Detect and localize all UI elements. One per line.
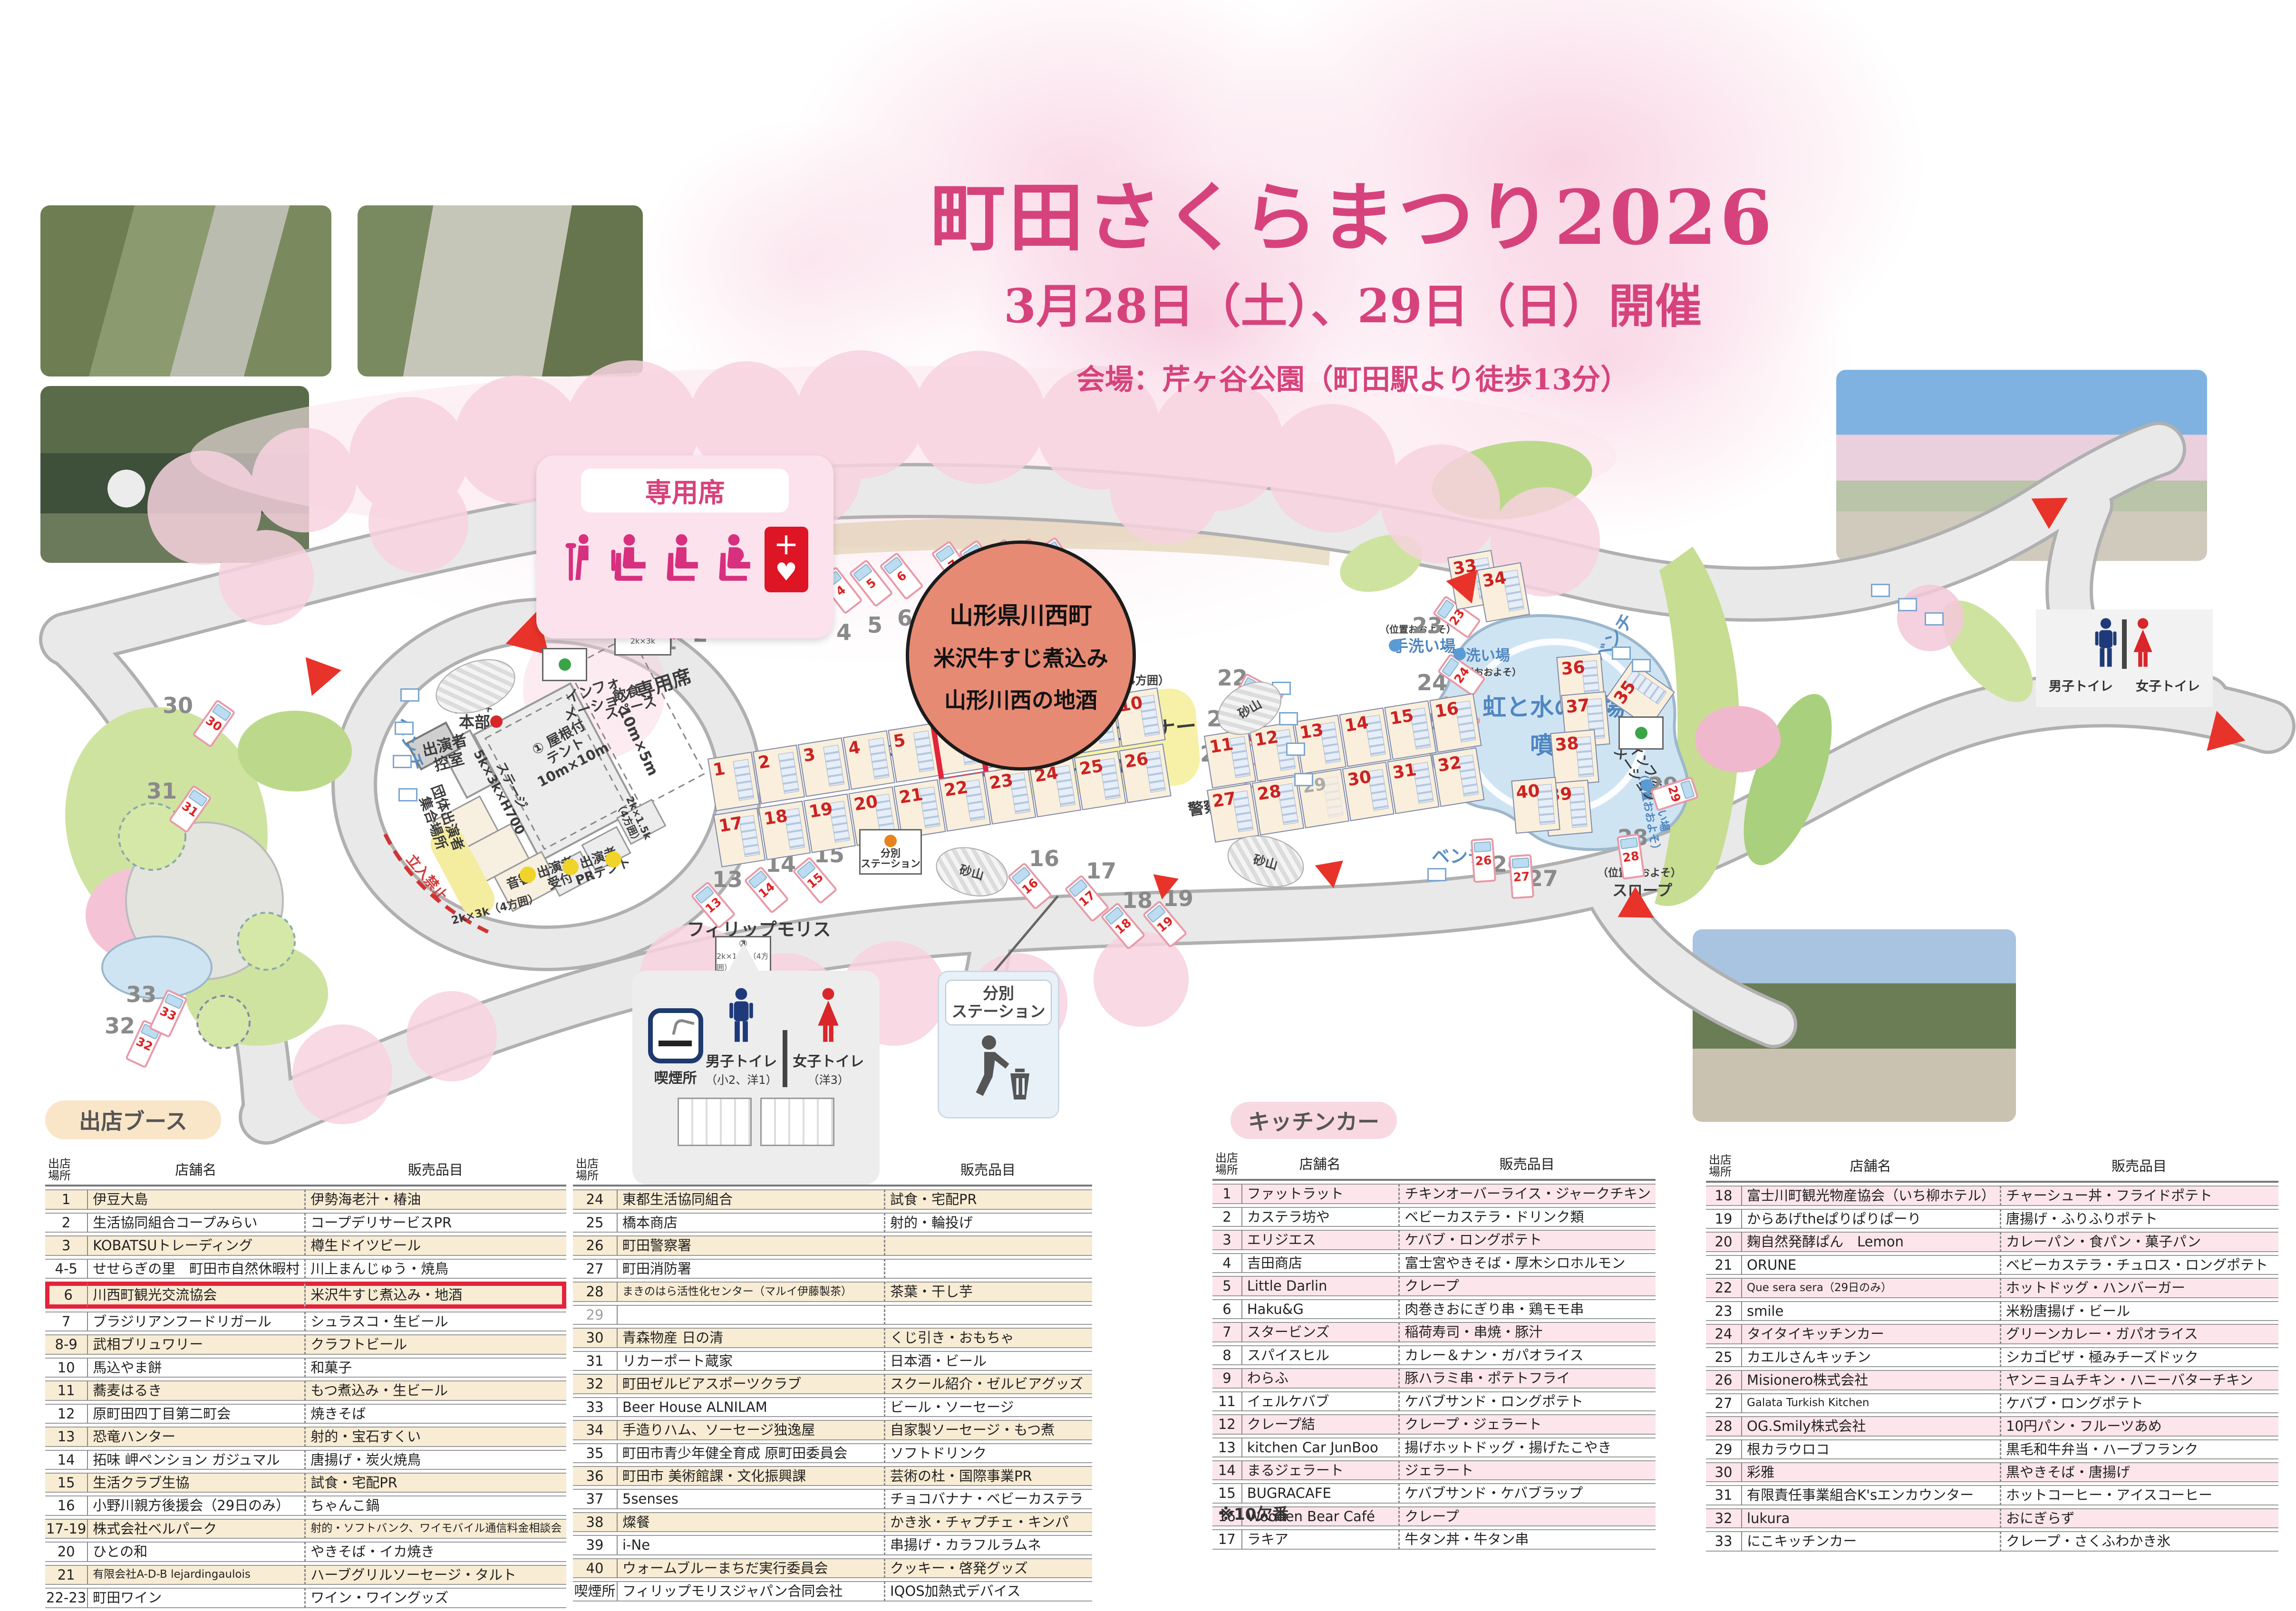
cell-items: 10円パン・フルーツあめ	[2000, 1416, 2278, 1436]
cell-name: 有限会社A-D-B lejardingaulois	[87, 1565, 304, 1585]
cell-name: ウォームブルーまちだ実行委員会	[617, 1558, 884, 1578]
cell-no: 13	[45, 1427, 87, 1447]
male-toilet-label: 男子トイレ	[2049, 676, 2113, 695]
cell-items: 射的・輪投げ	[884, 1213, 1092, 1233]
cell-name: 有限責任事業組合K'sエンカウンター	[1741, 1485, 2000, 1505]
cell-name: にこキッチンカー	[1741, 1531, 2000, 1551]
column-header-place: 出店 場所	[1212, 1149, 1241, 1181]
kitchen-table-1: 出店 場所店舗名販売品目1ファットラットチキンオーバーライス・ジャークチキン2カ…	[1212, 1147, 1656, 1553]
table-row: 375sensesチョコバナナ・ベビーカステラ	[573, 1489, 1092, 1509]
cell-no: 27	[1706, 1393, 1741, 1413]
cell-name: フィリップモリスジャパン合同会社	[617, 1581, 884, 1601]
right-toilet-legend: 男子トイレ 女子トイレ	[2036, 609, 2213, 707]
cell-no: 14	[45, 1450, 87, 1470]
cell-name: まるジェラート	[1241, 1460, 1399, 1480]
table-row: 3エリジエスケバブ・ロングポテト	[1212, 1230, 1656, 1250]
cell-items: 肉巻きおにぎり串・鶏モモ串	[1398, 1299, 1656, 1319]
cell-items: スクール紹介・ゼルビアグッズ	[884, 1374, 1092, 1394]
venue-line: 会場：芹ヶ谷公園（町田駅より徒歩13分）	[770, 357, 1935, 398]
table-row: 31リカーポート蔵家日本酒・ビール	[573, 1351, 1092, 1371]
column-header-name: 店舗名	[87, 1155, 304, 1187]
cell-no: 22-23	[45, 1588, 87, 1608]
cell-name: Little Darlin	[1241, 1276, 1399, 1296]
table-row: 24東都生活協同組合試食・宅配PR	[573, 1189, 1092, 1209]
cell-name: まきのはら活性化センター（マルイ伊藤製茶）	[617, 1282, 884, 1302]
cell-name: クレープ結	[1241, 1414, 1399, 1434]
cell-items: ハーブグリルソーセージ・タルト	[304, 1565, 566, 1585]
cell-no: 31	[1706, 1485, 1741, 1505]
cell-no: 29	[573, 1305, 617, 1325]
table-row: 31有限責任事業組合K'sエンカウンターホットコーヒー・アイスコーヒー	[1706, 1485, 2278, 1505]
help-mark-icon: ＋♥	[765, 527, 808, 592]
cell-items: 日本酒・ビール	[884, 1351, 1092, 1371]
table-row: 10馬込やま餅和菓子	[45, 1358, 566, 1378]
table-row: 38燦餐かき氷・チャプチェ・キンパ	[573, 1512, 1092, 1532]
cell-no: 4-5	[45, 1259, 87, 1279]
cell-no: 3	[1212, 1230, 1241, 1250]
table-row: 5Little Darlinクレープ	[1212, 1276, 1656, 1296]
cell-items: シカゴピザ・極みチーズドック	[2000, 1347, 2278, 1367]
cell-no: 4	[1212, 1253, 1241, 1273]
table-row: 11蕎麦はるきもつ煮込み・生ビール	[45, 1380, 566, 1400]
cell-name: Galata Turkish Kitchen	[1741, 1393, 2000, 1413]
cell-name: ブラジリアンフードリガール	[87, 1312, 304, 1331]
table-row: 13kitchen Car JunBoo揚げホットドッグ・揚げたこやき	[1212, 1437, 1656, 1457]
cell-name: 燦餐	[617, 1512, 884, 1532]
cell-items: ケバブ・ロングポテト	[2000, 1393, 2278, 1413]
table-row: 32町田ゼルビアスポーツクラブスクール紹介・ゼルビアグッズ	[573, 1374, 1092, 1394]
cell-name: ひとの和	[87, 1542, 304, 1562]
event-date: 3月28日（土）、29日（日）開催	[770, 269, 1935, 336]
cell-name: KOBATSUトレーディング	[87, 1235, 304, 1255]
male-toilet-label: 男子トイレ	[706, 1053, 777, 1071]
cell-name: 吉田商店	[1241, 1253, 1399, 1273]
cell-no: 20	[45, 1542, 87, 1562]
cell-no: 14	[1212, 1460, 1241, 1480]
table-row: 8-9武相ブリュワリークラフトビール	[45, 1334, 566, 1354]
table-row: 9わらふ豚ハラミ串・ポテトフライ	[1212, 1368, 1656, 1388]
cell-items: ホットコーヒー・アイスコーヒー	[2000, 1485, 2278, 1505]
male-icon	[727, 987, 756, 1047]
cell-name: 生活協同組合コープみらい	[87, 1213, 304, 1233]
cell-items: ケバブ・ロングポテト	[1398, 1230, 1656, 1250]
cell-no: 25	[1706, 1347, 1741, 1367]
cell-name: 蕎麦はるき	[87, 1380, 304, 1400]
cell-name: 5senses	[617, 1489, 884, 1509]
cell-name: タイタイキッチンカー	[1741, 1324, 2000, 1344]
cell-name: からあげtheぱりぱりぱーり	[1741, 1209, 2000, 1229]
crutch-user-icon	[562, 533, 595, 586]
cell-name: 町田市青少年健全育成 原町田委員会	[617, 1443, 884, 1463]
cell-items: 唐揚げ・ふりふりポテト	[2000, 1209, 2278, 1229]
male-toilet-sub: （小2、洋1）	[706, 1071, 777, 1087]
table-row: 7ブラジリアンフードリガールシュラスコ・生ビール	[45, 1312, 566, 1331]
cell-no: 15	[45, 1473, 87, 1493]
cell-items: 豚ハラミ串・ポテトフライ	[1398, 1368, 1656, 1388]
cell-items: チョコバナナ・ベビーカステラ	[884, 1489, 1092, 1509]
cell-no: 3	[45, 1235, 87, 1255]
cell-items: 射的・ソフトバンク、ワイモバイル通信料金相談会	[304, 1519, 566, 1539]
cell-no: 32	[1706, 1508, 1741, 1528]
table-row: 25カエルさんキッチンシカゴピザ・極みチーズドック	[1706, 1347, 2278, 1367]
booth-section-chip: 出店ブース	[45, 1100, 221, 1139]
cell-name: Beer House ALNILAM	[617, 1397, 884, 1417]
annotation-line2: 米沢牛すじ煮込み	[933, 641, 1108, 673]
cell-no: 15	[1212, 1483, 1241, 1503]
smoking-toilet-legend: 喫煙所 男子トイレ （小2、洋1） 女子トイレ （洋3）	[632, 971, 880, 1185]
cell-name: カエルさんキッチン	[1741, 1347, 2000, 1367]
cell-items: IQOS加熱式デバイス	[884, 1581, 1092, 1601]
table-row: 23smile米粉唐揚げ・ビール	[1706, 1301, 2278, 1321]
cell-name: Que sera sera（29日のみ）	[1741, 1278, 2000, 1298]
table-row: 2カステラ坊やベビーカステラ・ドリンク類	[1212, 1207, 1656, 1227]
cell-items: クレープ・ジェラート	[1398, 1414, 1656, 1434]
female-icon	[814, 987, 843, 1047]
cell-items: ちゃんこ鍋	[304, 1495, 566, 1515]
smoking-label: 喫煙所	[654, 1070, 697, 1087]
annotation-line3: 山形川西の地酒	[944, 683, 1097, 714]
cell-name: smile	[1741, 1301, 2000, 1321]
column-header-place: 出店 場所	[1706, 1151, 1741, 1183]
female-toilet-label: 女子トイレ	[2136, 676, 2200, 695]
divider	[2122, 619, 2127, 669]
cell-items: 焼きそば	[304, 1404, 566, 1424]
cell-name: せせらぎの里 町田市自然休暇村	[87, 1259, 304, 1279]
cell-no: 10	[45, 1358, 87, 1378]
cell-items: 黒やきそば・唐揚げ	[2000, 1462, 2278, 1482]
cell-name: 青森物産 日の清	[617, 1328, 884, 1348]
booth-table-2: 出店 場所店舗名販売品目24東都生活協同組合試食・宅配PR25橋本商店射的・輪投…	[573, 1152, 1092, 1604]
table-row: 15生活クラブ生協試食・宅配PR	[45, 1473, 566, 1493]
cell-no: 33	[1706, 1531, 1741, 1551]
column-header-items: 販売品目	[304, 1155, 566, 1187]
kitchen-footnote: ※10欠番	[1218, 1501, 1288, 1524]
kitchen-table-2: 出店 場所店舗名販売品目18富士川町観光物産協会（いち柳ホテル）チャーシュー丼・…	[1706, 1148, 2278, 1554]
sorting-station-label: 分別 ステーション	[945, 980, 1052, 1025]
cell-name: 拓味 岬ペンション ガジュマル	[87, 1450, 304, 1470]
cell-name: エリジエス	[1241, 1230, 1399, 1250]
annotation-line1: 山形県川西町	[949, 597, 1092, 631]
table-row: 34手造りハム、ソーセージ独逸屋自家製ソーセージ・もつ煮	[573, 1420, 1092, 1440]
cell-no: 1	[1212, 1184, 1241, 1204]
cell-items: ジェラート	[1398, 1460, 1656, 1480]
cell-name: 馬込やま餅	[87, 1358, 304, 1378]
cell-no: 7	[45, 1312, 87, 1331]
cell-no: 7	[1212, 1322, 1241, 1342]
trash-person-icon	[963, 1033, 1034, 1104]
cell-no: 24	[573, 1189, 617, 1209]
column-header-name: 店舗名	[1741, 1151, 2000, 1183]
table-row: 20ひとの和やきそば・イカ焼き	[45, 1542, 566, 1562]
table-row: 4吉田商店富士宮やきそば・厚木シロホルモン	[1212, 1253, 1656, 1273]
table-row: 19からあげtheぱりぱりぱーり唐揚げ・ふりふりポテト	[1706, 1209, 2278, 1229]
cell-items: 芸術の杜・国際事業PR	[884, 1466, 1092, 1486]
pregnant-seated-icon	[712, 533, 752, 586]
table-row: 17-19株式会社ベルパーク射的・ソフトバンク、ワイモバイル通信料金相談会	[45, 1519, 566, 1539]
cell-name: カステラ坊や	[1241, 1207, 1399, 1227]
cell-items: 和菓子	[304, 1358, 566, 1378]
cell-items: おにぎらず	[2000, 1508, 2278, 1528]
cell-no: 39	[573, 1535, 617, 1555]
column-header-items: 販売品目	[884, 1155, 1092, 1187]
cell-items: ケバブサンド・ケバブラップ	[1398, 1483, 1656, 1503]
cell-items: ホットドッグ・ハンバーガー	[2000, 1278, 2278, 1298]
cell-items: かき氷・チャプチェ・キンパ	[884, 1512, 1092, 1532]
cell-items: チャーシュー丼・フライドポテト	[2000, 1186, 2278, 1206]
cell-name: イェルケバブ	[1241, 1391, 1399, 1411]
table-row: 12原町田四丁目第二町会焼きそば	[45, 1404, 566, 1424]
booth-table-1: 出店 場所店舗名販売品目1伊豆大島伊勢海老汁・椿油2生活協同組合コープみらいコー…	[45, 1152, 536, 1611]
table-row: 17ラキア牛タン丼・牛タン串	[1212, 1529, 1656, 1549]
cell-no: 30	[573, 1328, 617, 1348]
cell-name	[617, 1305, 884, 1325]
cell-name: 町田ワイン	[87, 1588, 304, 1608]
cell-no: 36	[573, 1466, 617, 1486]
cell-no: 2	[45, 1213, 87, 1233]
cell-no: 31	[573, 1351, 617, 1371]
cell-no: 12	[45, 1404, 87, 1424]
table-row: 33にこキッチンカークレープ・さくふわかき氷	[1706, 1531, 2278, 1551]
cell-no: 28	[1706, 1416, 1741, 1436]
cell-name: 武相ブリュワリー	[87, 1334, 304, 1354]
cell-no: 22	[1706, 1278, 1741, 1298]
cell-name: 町田警察署	[617, 1235, 884, 1255]
cell-items: コープデリサービスPR	[304, 1213, 566, 1233]
table-row: 21ORUNEベビーカステラ・チュロス・ロングポテト	[1706, 1255, 2278, 1275]
cell-no: 34	[573, 1420, 617, 1440]
cell-items: 自家製ソーセージ・もつ煮	[884, 1420, 1092, 1440]
table-row: 27Galata Turkish Kitchenケバブ・ロングポテト	[1706, 1393, 2278, 1413]
table-row: 36町田市 美術館課・文化振興課芸術の杜・国際事業PR	[573, 1466, 1092, 1486]
table-row: 12クレープ結クレープ・ジェラート	[1212, 1414, 1656, 1434]
cell-no: 19	[1706, 1209, 1741, 1229]
cell-no: 23	[1706, 1301, 1741, 1321]
table-row: 28OG.Smily株式会社10円パン・フルーツあめ	[1706, 1416, 2278, 1436]
table-row: 39i-Ne串揚げ・カラフルラムネ	[573, 1535, 1092, 1555]
cell-items: グリーンカレー・ガパオライス	[2000, 1324, 2278, 1344]
cell-no: 30	[1706, 1462, 1741, 1482]
column-header-items: 販売品目	[1398, 1149, 1656, 1181]
cell-no: 17	[1212, 1529, 1241, 1549]
cell-name: スパイスヒル	[1241, 1345, 1399, 1365]
cell-name: 株式会社ベルパーク	[87, 1519, 304, 1539]
male-icon	[2093, 617, 2119, 671]
sorting-station-callout: 分別 ステーション	[938, 971, 1059, 1119]
smoking-icon	[648, 1008, 703, 1063]
cell-no: 8-9	[45, 1334, 87, 1354]
cell-no: 12	[1212, 1414, 1241, 1434]
cell-name: スタービンズ	[1241, 1322, 1399, 1342]
cell-no: 29	[1706, 1439, 1741, 1459]
cell-no: 25	[573, 1213, 617, 1233]
page-title: 町田さくらまつり2026	[770, 157, 1935, 266]
table-row: 28まきのはら活性化センター（マルイ伊藤製茶）茶葉・干し芋	[573, 1282, 1092, 1302]
cell-items: 伊勢海老汁・椿油	[304, 1189, 566, 1209]
cell-items: 牛タン丼・牛タン串	[1398, 1529, 1656, 1549]
cell-items: クッキー・啓発グッズ	[884, 1558, 1092, 1578]
cell-items: ベビーカステラ・チュロス・ロングポテト	[2000, 1255, 2278, 1275]
column-header-name: 店舗名	[1241, 1149, 1399, 1181]
seated-person-icon	[660, 533, 700, 586]
priority-seat-label: 専用席	[581, 469, 789, 512]
table-row: 29	[573, 1305, 1092, 1325]
cell-name: 富士川町観光物産協会（いち柳ホテル）	[1741, 1186, 2000, 1206]
cell-no: 6	[1212, 1299, 1241, 1319]
cell-items: 米粉唐揚げ・ビール	[2000, 1301, 2278, 1321]
cell-no: 33	[573, 1397, 617, 1417]
cell-name: 原町田四丁目第二町会	[87, 1404, 304, 1424]
table-row: 20麹自然発酵ぱん Lemonカレーパン・食パン・菓子パン	[1706, 1232, 2278, 1252]
cell-name: 麹自然発酵ぱん Lemon	[1741, 1232, 2000, 1252]
cell-no: 37	[573, 1489, 617, 1509]
cell-items: 川上まんじゅう・焼鳥	[304, 1259, 566, 1279]
cell-no: 18	[1706, 1186, 1741, 1206]
cell-name: わらふ	[1241, 1368, 1399, 1388]
cell-items: 射的・宝石すくい	[304, 1427, 566, 1447]
table-row: 8スパイスヒルカレー＆ナン・ガパオライス	[1212, 1345, 1656, 1365]
cell-name: BUGRACAFE	[1241, 1483, 1399, 1503]
table-row: 26町田警察署	[573, 1235, 1092, 1255]
cell-items: 試食・宅配PR	[304, 1473, 566, 1493]
table-row: 21有限会社A-D-B lejardingauloisハーブグリルソーセージ・タ…	[45, 1565, 566, 1585]
cell-items: クレープ	[1398, 1506, 1656, 1526]
table-row: 40ウォームブルーまちだ実行委員会クッキー・啓発グッズ	[573, 1558, 1092, 1578]
cell-no: 6	[45, 1282, 87, 1308]
cell-no: 27	[573, 1259, 617, 1279]
cell-items	[884, 1305, 1092, 1325]
cell-no: 13	[1212, 1437, 1241, 1457]
cell-name: 生活クラブ生協	[87, 1473, 304, 1493]
table-row: 4-5せせらぎの里 町田市自然休暇村川上まんじゅう・焼鳥	[45, 1259, 566, 1279]
cell-items: 茶葉・干し芋	[884, 1282, 1092, 1302]
cell-no: 21	[45, 1565, 87, 1585]
cell-items: もつ煮込み・生ビール	[304, 1380, 566, 1400]
cell-name: 町田ゼルビアスポーツクラブ	[617, 1374, 884, 1394]
cell-items: 揚げホットドッグ・揚げたこやき	[1398, 1437, 1656, 1457]
table-row: 1伊豆大島伊勢海老汁・椿油	[45, 1189, 566, 1209]
cell-items: クラフトビール	[304, 1334, 566, 1354]
cell-items: チキンオーバーライス・ジャークチキン	[1398, 1184, 1656, 1204]
divider	[783, 1030, 787, 1087]
cell-no: 9	[1212, 1368, 1241, 1388]
cell-name: 根カラウロコ	[1741, 1439, 2000, 1459]
cell-name: ファットラット	[1241, 1184, 1399, 1204]
cell-no: 32	[573, 1374, 617, 1394]
table-row: 29根カラウロコ黒毛和牛弁当・ハーブフランク	[1706, 1439, 2278, 1459]
cell-no: 11	[45, 1380, 87, 1400]
table-row: 16小野川親方後援会（29日のみ）ちゃんこ鍋	[45, 1495, 566, 1515]
cell-items: クレープ・さくふわかき氷	[2000, 1531, 2278, 1551]
cell-items	[884, 1235, 1092, 1255]
cell-no: 26	[1706, 1370, 1741, 1390]
cell-items: ワイン・ワイングッズ	[304, 1588, 566, 1608]
table-row: 喫煙所フィリップモリスジャパン合同会社IQOS加熱式デバイス	[573, 1581, 1092, 1601]
column-header-place: 出店 場所	[45, 1155, 87, 1187]
table-row: 35町田市青少年健全育成 原町田委員会ソフトドリンク	[573, 1443, 1092, 1463]
cell-name: 恐竜ハンター	[87, 1427, 304, 1447]
table-row: 18富士川町観光物産協会（いち柳ホテル）チャーシュー丼・フライドポテト	[1706, 1186, 2278, 1206]
female-toilet-sub: （洋3）	[793, 1071, 864, 1087]
table-row: 30彩雅黒やきそば・唐揚げ	[1706, 1462, 2278, 1482]
cell-no: 喫煙所	[573, 1581, 617, 1601]
cell-name: OG.Smily株式会社	[1741, 1416, 2000, 1436]
table-row: 24タイタイキッチンカーグリーンカレー・ガパオライス	[1706, 1324, 2278, 1344]
cell-no: 11	[1212, 1391, 1241, 1411]
cell-no: 5	[1212, 1276, 1241, 1296]
cell-no: 2	[1212, 1207, 1241, 1227]
cell-name: 橋本商店	[617, 1213, 884, 1233]
cell-name: i-Ne	[617, 1535, 884, 1555]
cell-no: 20	[1706, 1232, 1741, 1252]
table-row: 6Haku&G肉巻きおにぎり串・鶏モモ串	[1212, 1299, 1656, 1319]
cell-name: kitchen Car JunBoo	[1241, 1437, 1399, 1457]
table-row: 15BUGRACAFEケバブサンド・ケバブラップ	[1212, 1483, 1656, 1503]
table-row: 11イェルケバブケバブサンド・ロングポテト	[1212, 1391, 1656, 1411]
cell-no: 1	[45, 1189, 87, 1209]
cell-name: 小野川親方後援会（29日のみ）	[87, 1495, 304, 1515]
cell-items: 唐揚げ・炭火焼鳥	[304, 1450, 566, 1470]
cell-name: 町田市 美術館課・文化振興課	[617, 1466, 884, 1486]
cell-items: 樽生ドイツビール	[304, 1235, 566, 1255]
cell-name: 彩雅	[1741, 1462, 2000, 1482]
cell-items: 富士宮やきそば・厚木シロホルモン	[1398, 1253, 1656, 1273]
cell-name: 伊豆大島	[87, 1189, 304, 1209]
cell-name: 東都生活協同組合	[617, 1189, 884, 1209]
cell-items: 試食・宅配PR	[884, 1189, 1092, 1209]
table-row: 32lukuraおにぎらず	[1706, 1508, 2278, 1528]
cell-no: 24	[1706, 1324, 1741, 1344]
cell-items: ヤンニョムチキン・ハニーバターチキン	[2000, 1370, 2278, 1390]
cell-name: Misionero株式会社	[1741, 1370, 2000, 1390]
cell-items: ケバブサンド・ロングポテト	[1398, 1391, 1656, 1411]
column-header-place: 出店 場所	[573, 1155, 617, 1187]
table-row: 27町田消防署	[573, 1259, 1092, 1279]
cell-no: 26	[573, 1235, 617, 1255]
cell-name: 川西町観光交流協会	[87, 1282, 304, 1308]
cell-items: シュラスコ・生ビール	[304, 1312, 566, 1331]
priority-seat-callout: 専用席 ＋♥	[536, 455, 833, 638]
cell-name: Haku&G	[1241, 1299, 1399, 1319]
cell-no: 40	[573, 1558, 617, 1578]
cell-items: やきそば・イカ焼き	[304, 1542, 566, 1562]
cell-name: ラキア	[1241, 1529, 1399, 1549]
cell-items: ベビーカステラ・ドリンク類	[1398, 1207, 1656, 1227]
table-row: 30青森物産 日の清くじ引き・おもちゃ	[573, 1328, 1092, 1348]
female-icon	[2130, 617, 2156, 671]
cell-no: 21	[1706, 1255, 1741, 1275]
cell-items: 黒毛和牛弁当・ハーブフランク	[2000, 1439, 2278, 1459]
toilet-floorplan	[678, 1098, 752, 1146]
cell-items: 稲荷寿司・串焼・豚汁	[1398, 1322, 1656, 1342]
table-row: 2生活協同組合コープみらいコープデリサービスPR	[45, 1213, 566, 1233]
cell-name: lukura	[1741, 1508, 2000, 1528]
toilet-floorplan	[760, 1098, 834, 1146]
female-toilet-label: 女子トイレ	[793, 1053, 864, 1071]
column-header-items: 販売品目	[2000, 1151, 2278, 1183]
table-row: 7スタービンズ稲荷寿司・串焼・豚汁	[1212, 1322, 1656, 1342]
table-row: 13恐竜ハンター射的・宝石すくい	[45, 1427, 566, 1447]
table-row: 25橋本商店射的・輪投げ	[573, 1213, 1092, 1233]
kawanishi-annotation: 山形県川西町 米沢牛すじ煮込み 山形川西の地酒	[906, 540, 1136, 771]
table-row: 3KOBATSUトレーディング樽生ドイツビール	[45, 1235, 566, 1255]
cell-items: 串揚げ・カラフルラムネ	[884, 1535, 1092, 1555]
cell-no: 28	[573, 1282, 617, 1302]
cell-items: くじ引き・おもちゃ	[884, 1328, 1092, 1348]
cell-no: 35	[573, 1443, 617, 1463]
elderly-seated-icon	[608, 533, 648, 586]
cell-no: 16	[45, 1495, 87, 1515]
cell-name: 手造りハム、ソーセージ独逸屋	[617, 1420, 884, 1440]
